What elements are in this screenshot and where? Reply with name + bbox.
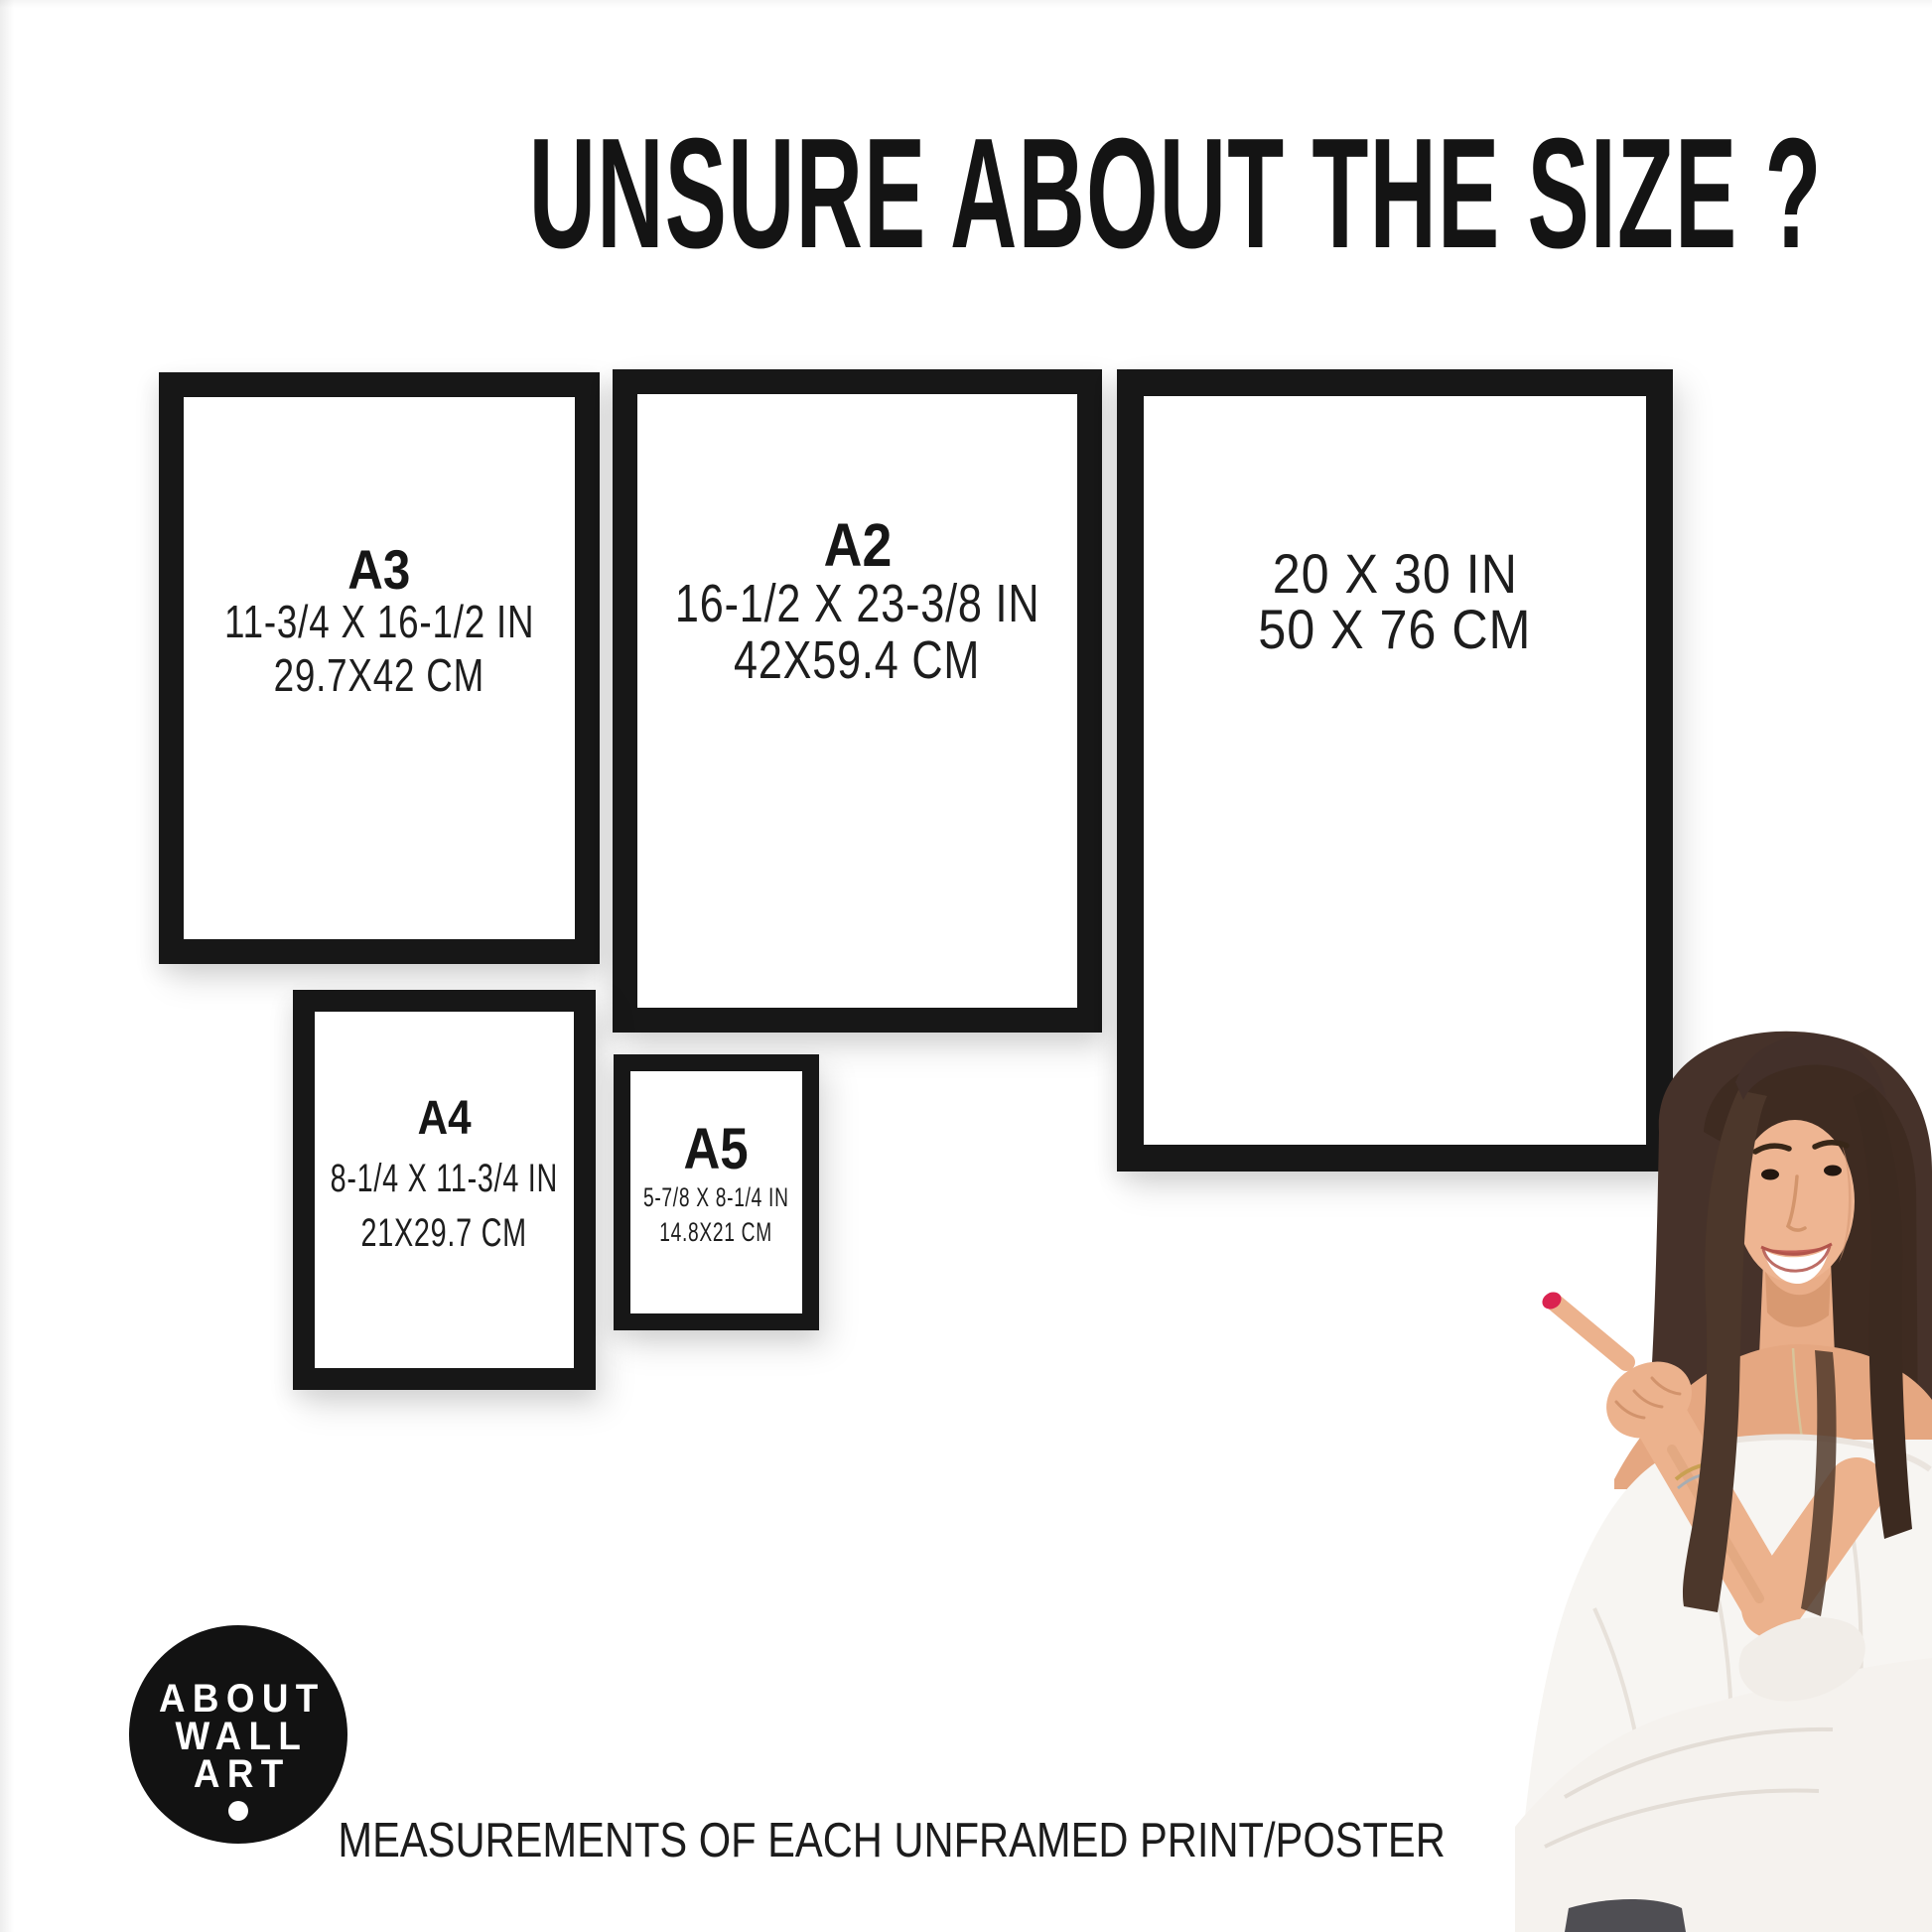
size-cm-a4: 21X29.7 CM — [361, 1213, 527, 1253]
brand-logo-line1: ABOUT — [151, 1680, 325, 1718]
size-frame-a2: A2 16-1/2 X 23-3/8 IN 42X59.4 CM — [613, 369, 1102, 1033]
eye-left — [1761, 1170, 1779, 1180]
size-cm-a5: 14.8X21 CM — [660, 1219, 773, 1246]
size-inches-a4: 8-1/4 X 11-3/4 IN — [331, 1159, 558, 1198]
model-photo — [1366, 1013, 1932, 1932]
size-cm-20x30: 50 X 76 CM — [1258, 602, 1531, 657]
page-title-text: UNSURE ABOUT THE SIZE ? — [529, 115, 1823, 272]
page-title: UNSURE ABOUT THE SIZE ? — [0, 115, 1932, 272]
brand-logo-line3: ART — [186, 1755, 290, 1793]
brand-logo-line2: WALL — [168, 1718, 308, 1755]
size-frame-a5: A5 5-7/8 X 8-1/4 IN 14.8X21 CM — [614, 1054, 819, 1330]
size-frame-a3: A3 11-3/4 X 16-1/2 IN 29.7X42 CM — [159, 372, 600, 964]
size-inches-a5: 5-7/8 X 8-1/4 IN — [643, 1184, 789, 1211]
size-label-a4: A4 — [417, 1095, 471, 1143]
index-finger — [1555, 1303, 1626, 1362]
size-inches-a3: 11-3/4 X 16-1/2 IN — [224, 599, 534, 644]
size-label-a5: A5 — [684, 1121, 749, 1178]
size-frame-a4: A4 8-1/4 X 11-3/4 IN 21X29.7 CM — [293, 990, 596, 1390]
eye-right — [1824, 1166, 1842, 1176]
brand-logo: ABOUT WALL ART — [129, 1625, 347, 1844]
size-label-a3: A3 — [347, 542, 410, 598]
size-inches-a2: 16-1/2 X 23-3/8 IN — [675, 577, 1039, 630]
footer-caption-text: MEASUREMENTS OF EACH UNFRAMED PRINT/POST… — [338, 1817, 1445, 1865]
scan-edge-left — [0, 0, 14, 1932]
size-guide-poster: UNSURE ABOUT THE SIZE ? A3 11-3/4 X 16-1… — [0, 0, 1932, 1932]
scan-edge-top — [0, 0, 1932, 8]
size-cm-a3: 29.7X42 CM — [274, 652, 485, 698]
size-cm-a2: 42X59.4 CM — [734, 633, 980, 687]
size-inches-20x30: 20 X 30 IN — [1272, 546, 1517, 602]
size-label-a2: A2 — [823, 515, 892, 576]
